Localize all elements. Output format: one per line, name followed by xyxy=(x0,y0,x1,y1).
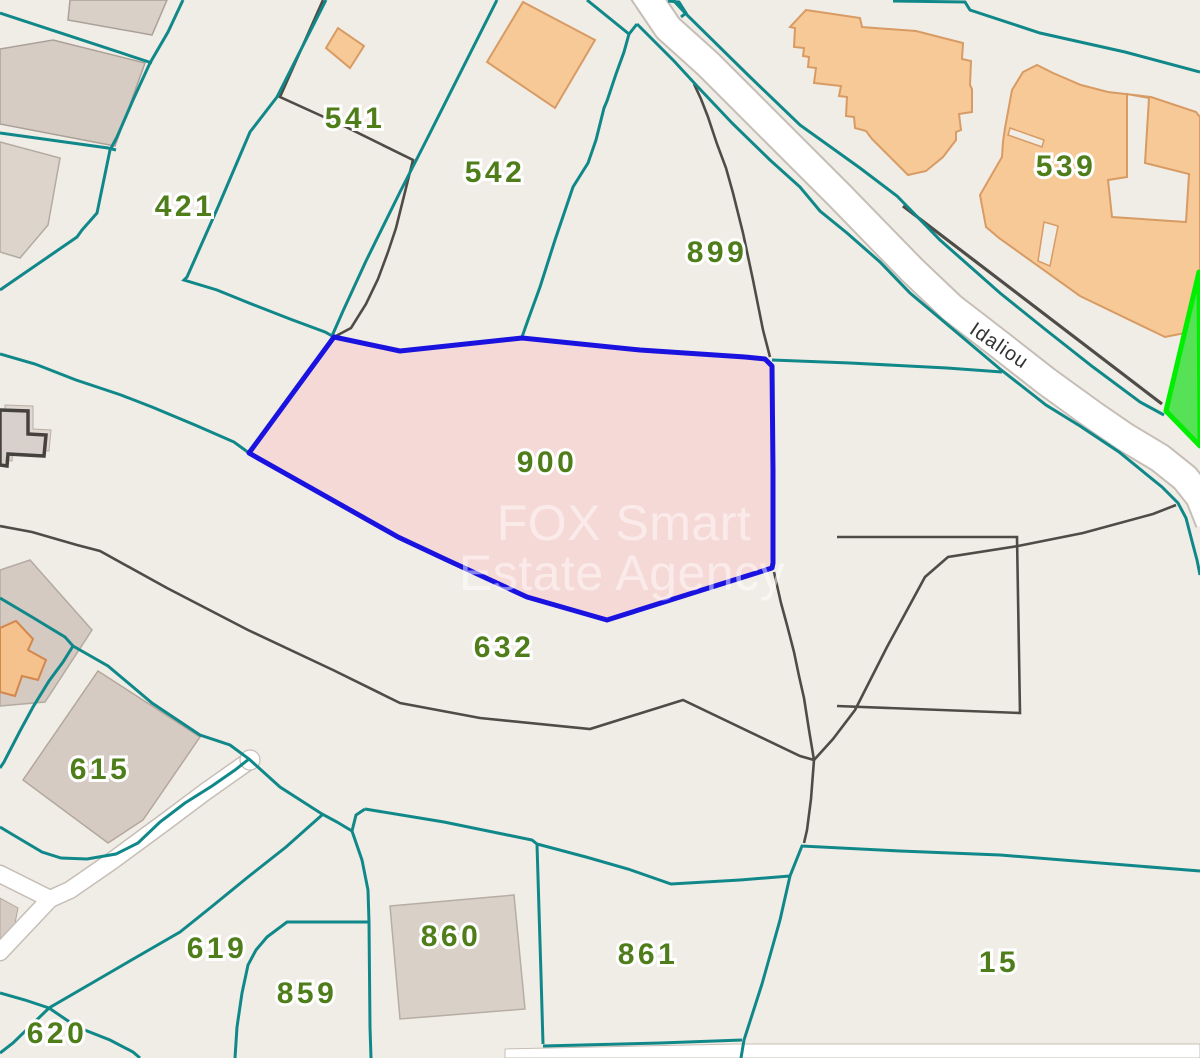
svg-text:619: 619 xyxy=(187,932,248,965)
svg-text:900: 900 xyxy=(517,446,578,479)
svg-text:632: 632 xyxy=(474,631,535,664)
svg-text:620: 620 xyxy=(27,1017,88,1050)
svg-text:860: 860 xyxy=(421,920,482,953)
svg-text:421: 421 xyxy=(155,190,216,223)
svg-text:Estate Agency: Estate Agency xyxy=(459,545,785,601)
svg-text:861: 861 xyxy=(618,938,679,971)
svg-text:15: 15 xyxy=(979,946,1019,979)
svg-text:539: 539 xyxy=(1036,150,1097,183)
svg-text:541: 541 xyxy=(325,102,386,135)
svg-text:615: 615 xyxy=(70,753,131,786)
svg-text:542: 542 xyxy=(465,156,526,189)
svg-text:899: 899 xyxy=(687,236,748,269)
svg-text:FOX Smart: FOX Smart xyxy=(497,495,752,551)
svg-text:859: 859 xyxy=(277,977,338,1010)
